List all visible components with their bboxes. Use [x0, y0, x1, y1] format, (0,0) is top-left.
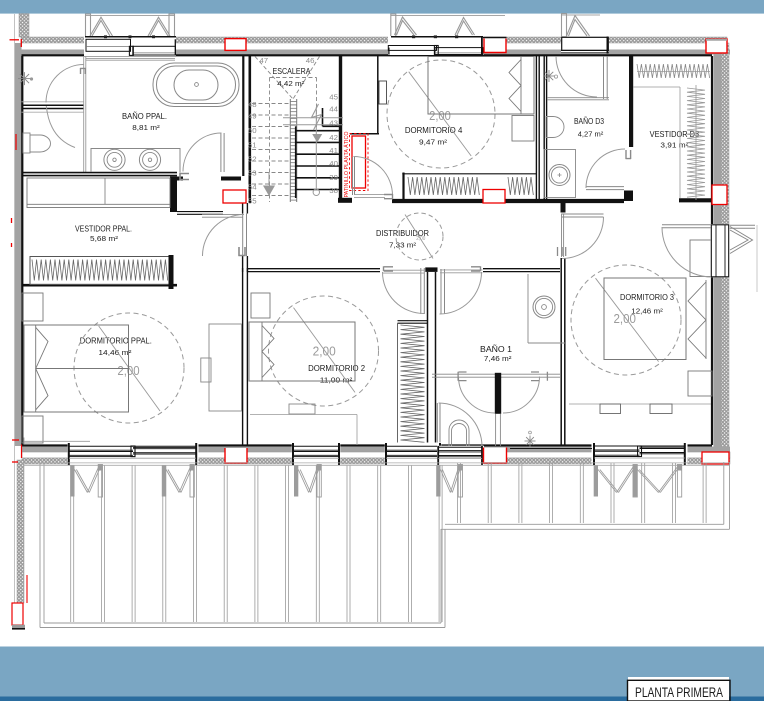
svg-text:48: 48 [248, 100, 257, 109]
svg-text:52: 52 [248, 155, 257, 164]
svg-text:PATINILLO PLANTA ÁTICO: PATINILLO PLANTA ÁTICO [343, 131, 350, 198]
svg-text:47: 47 [259, 56, 268, 65]
svg-text:ESCALERA: ESCALERA [273, 67, 311, 76]
svg-text:2,00: 2,00 [313, 345, 336, 359]
svg-text:54: 54 [248, 183, 257, 192]
svg-text:42: 42 [329, 133, 338, 142]
svg-text:39: 39 [329, 173, 338, 182]
svg-text:VESTIDOR PPAL.: VESTIDOR PPAL. [75, 225, 132, 234]
svg-text:7,46 m²: 7,46 m² [484, 354, 512, 363]
svg-text:5,68 m²: 5,68 m² [90, 234, 119, 243]
svg-text:7,33 m²: 7,33 m² [389, 241, 417, 250]
svg-text:8,81 m²: 8,81 m² [132, 123, 160, 132]
svg-text:38: 38 [329, 186, 338, 195]
svg-text:3,91 m²: 3,91 m² [660, 141, 689, 150]
svg-text:BAÑO 1: BAÑO 1 [480, 344, 512, 354]
svg-text:2,00: 2,00 [429, 109, 451, 123]
svg-text:DORMITORIO 3: DORMITORIO 3 [620, 293, 674, 302]
svg-text:2,00: 2,00 [613, 312, 636, 326]
svg-text:12,46 m²: 12,46 m² [631, 307, 663, 316]
svg-text:45: 45 [329, 93, 338, 102]
svg-text:DORMITORIO 2: DORMITORIO 2 [308, 364, 365, 373]
svg-text:4,42 m²: 4,42 m² [277, 79, 305, 88]
svg-text:DORMITORIO PPAL.: DORMITORIO PPAL. [80, 337, 152, 346]
svg-text:BAÑO D3: BAÑO D3 [574, 116, 604, 126]
svg-text:53: 53 [248, 169, 257, 178]
svg-text:BAÑO PPAL.: BAÑO PPAL. [122, 111, 167, 121]
svg-text:49: 49 [248, 112, 257, 121]
svg-text:PLANTA PRIMERA: PLANTA PRIMERA [635, 685, 723, 700]
svg-text:43: 43 [329, 119, 338, 128]
svg-text:50: 50 [248, 126, 257, 135]
svg-text:9,47 m²: 9,47 m² [419, 138, 448, 147]
svg-text:51: 51 [248, 141, 257, 150]
svg-text:44: 44 [329, 105, 338, 114]
svg-text:4,27 m²: 4,27 m² [578, 130, 604, 139]
svg-text:40: 40 [329, 159, 338, 168]
svg-text:46: 46 [306, 56, 315, 65]
svg-text:41: 41 [329, 146, 338, 155]
svg-text:2,00: 2,00 [416, 236, 425, 242]
svg-text:55: 55 [248, 197, 257, 206]
